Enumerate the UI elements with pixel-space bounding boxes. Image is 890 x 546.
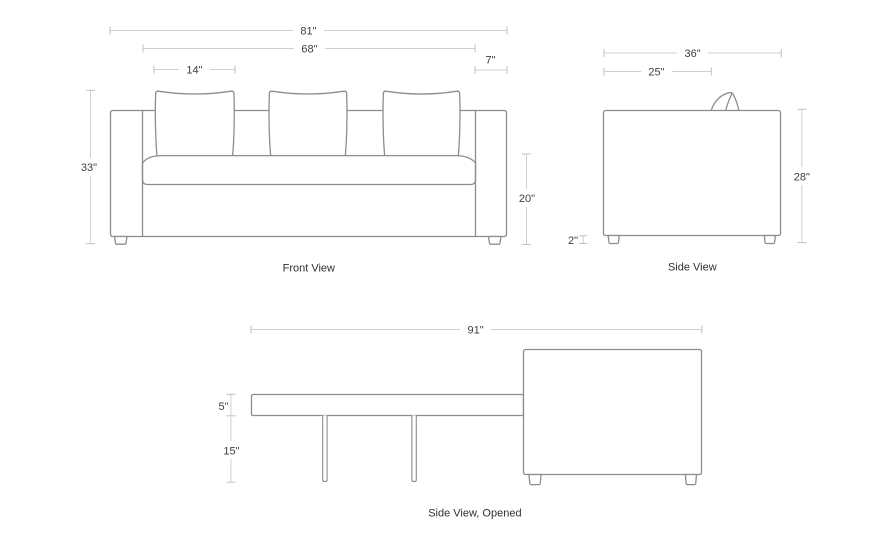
svg-text:36": 36" — [685, 48, 701, 60]
svg-text:68": 68" — [301, 44, 317, 56]
svg-text:28": 28" — [794, 171, 810, 183]
svg-text:2": 2" — [568, 235, 578, 247]
svg-text:20": 20" — [519, 193, 535, 205]
svg-text:Side View: Side View — [668, 262, 717, 274]
svg-text:33": 33" — [81, 162, 97, 174]
svg-text:91": 91" — [468, 325, 484, 337]
svg-text:7": 7" — [485, 55, 495, 67]
svg-text:Front View: Front View — [283, 262, 335, 274]
svg-text:Side View, Opened: Side View, Opened — [428, 508, 521, 520]
svg-text:14": 14" — [186, 65, 202, 77]
svg-text:5": 5" — [218, 401, 228, 413]
svg-text:25": 25" — [648, 67, 664, 79]
svg-text:81": 81" — [300, 26, 316, 38]
svg-text:15": 15" — [223, 446, 239, 458]
